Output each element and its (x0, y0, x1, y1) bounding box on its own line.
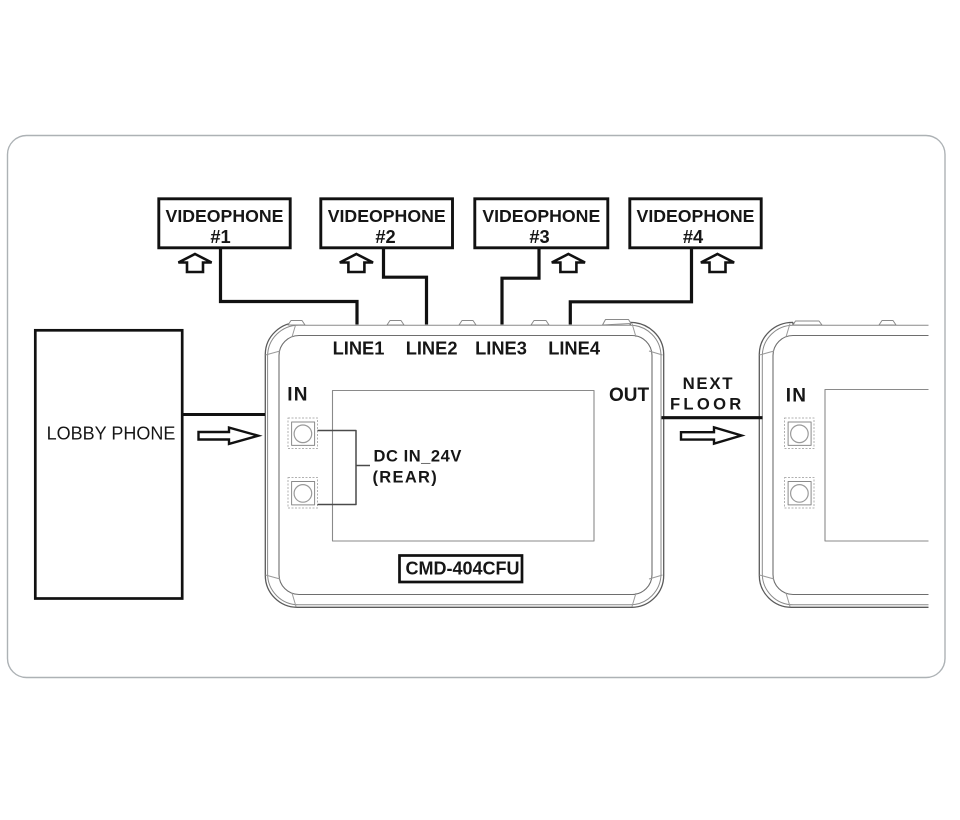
svg-text:VIDEOPHONE: VIDEOPHONE (166, 206, 284, 226)
svg-text:NEXT: NEXT (683, 374, 735, 393)
svg-text:FLOOR: FLOOR (670, 395, 745, 414)
svg-text:IN: IN (786, 386, 807, 407)
svg-text:IN: IN (287, 385, 308, 406)
svg-text:VIDEOPHONE: VIDEOPHONE (637, 206, 755, 226)
svg-text:CMD-404CFU: CMD-404CFU (405, 559, 519, 579)
svg-text:LINE4: LINE4 (548, 338, 601, 359)
svg-text:(REAR): (REAR) (373, 469, 439, 487)
svg-text:OUT: OUT (609, 385, 650, 406)
svg-text:#2: #2 (375, 226, 395, 247)
svg-text:LINE3: LINE3 (475, 338, 527, 359)
svg-text:#1: #1 (210, 226, 230, 247)
svg-text:LINE1: LINE1 (333, 338, 385, 359)
svg-text:VIDEOPHONE: VIDEOPHONE (328, 206, 446, 226)
svg-text:LOBBY PHONE: LOBBY PHONE (47, 424, 176, 444)
svg-text:VIDEOPHONE: VIDEOPHONE (482, 206, 600, 226)
svg-text:#4: #4 (683, 226, 704, 247)
svg-text:LINE2: LINE2 (406, 338, 458, 359)
svg-text:DC IN_24V: DC IN_24V (374, 448, 462, 466)
svg-text:#3: #3 (529, 226, 549, 247)
